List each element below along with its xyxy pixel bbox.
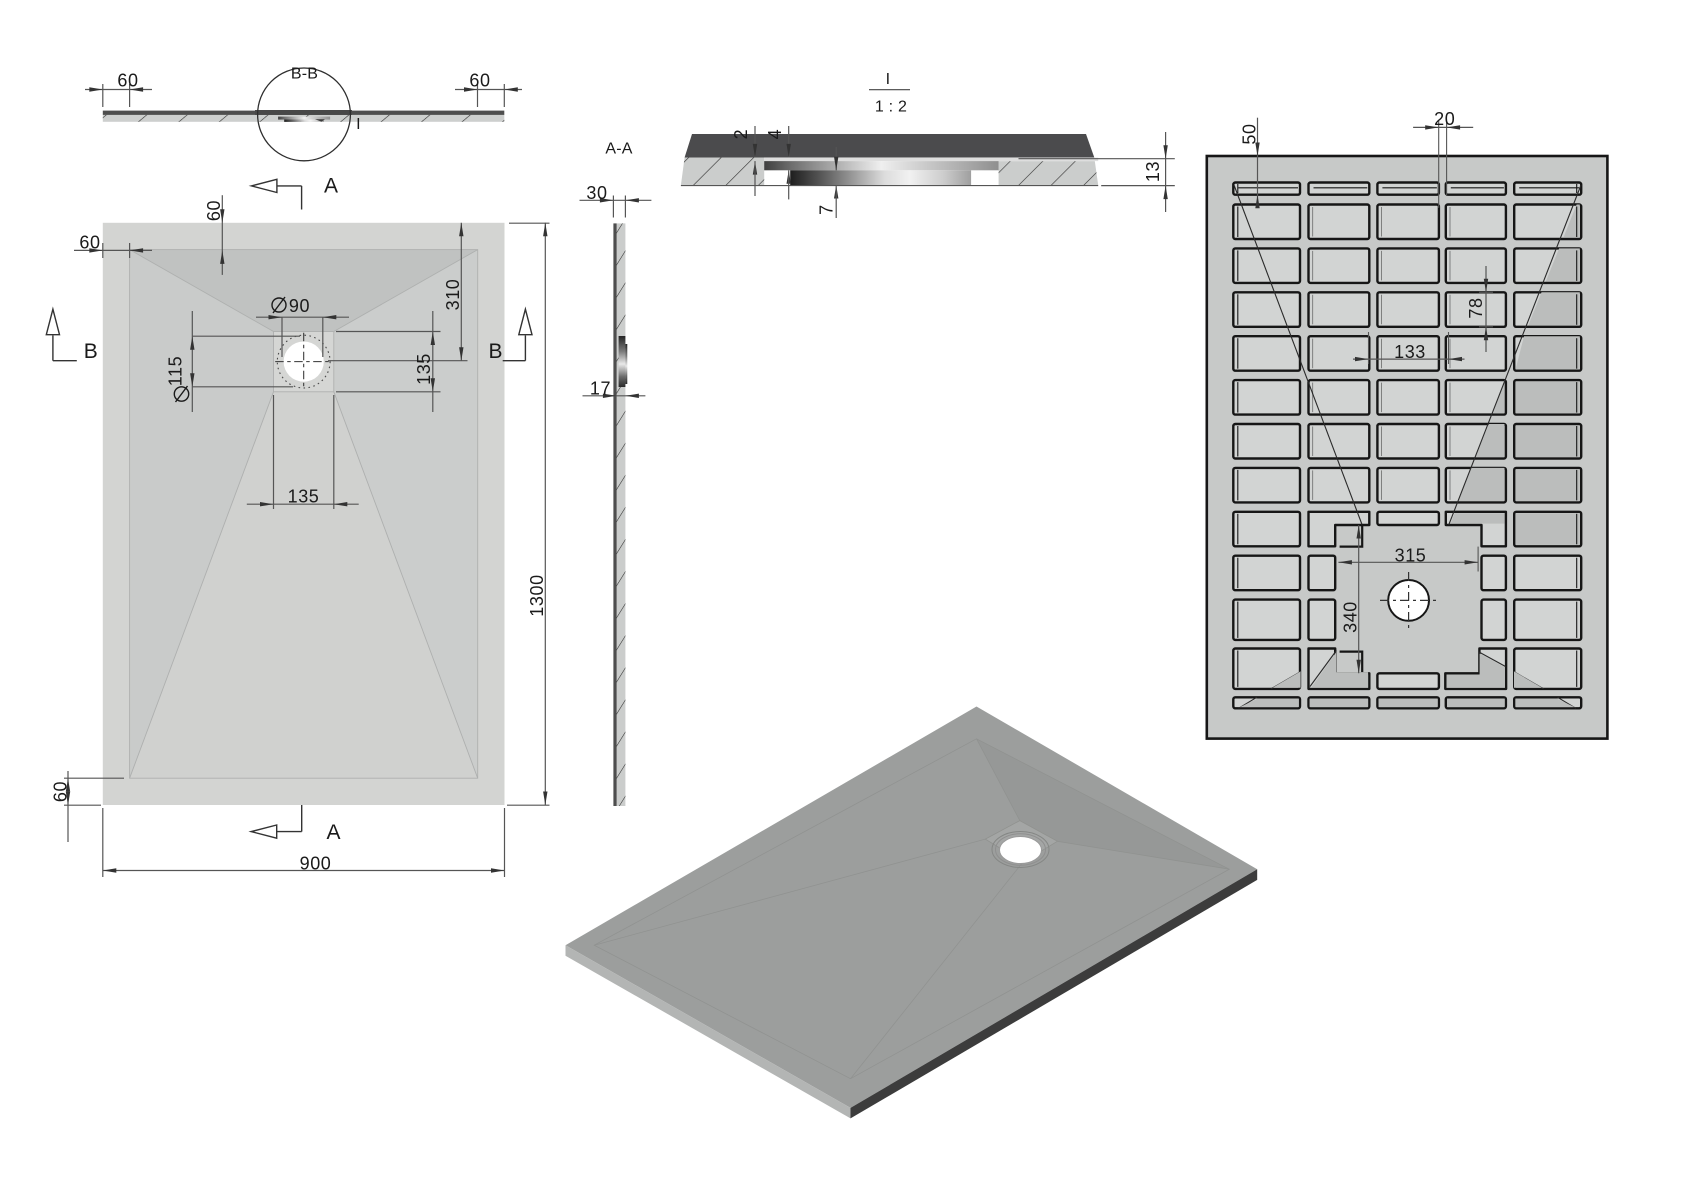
- svg-text:60: 60: [117, 71, 138, 91]
- svg-text:B: B: [489, 340, 503, 363]
- svg-text:A: A: [326, 821, 340, 844]
- svg-text:315: 315: [1395, 545, 1427, 565]
- svg-text:13: 13: [1143, 161, 1163, 182]
- svg-text:B: B: [84, 340, 98, 363]
- svg-text:1 : 2: 1 : 2: [875, 99, 907, 116]
- svg-text:A-A: A-A: [605, 140, 632, 157]
- svg-text:50: 50: [1240, 123, 1260, 144]
- svg-text:60: 60: [51, 781, 71, 802]
- svg-text:60: 60: [469, 71, 490, 91]
- svg-text:I: I: [886, 71, 891, 88]
- svg-text:90: 90: [289, 296, 310, 316]
- svg-text:78: 78: [1466, 297, 1486, 318]
- svg-text:60: 60: [79, 232, 100, 252]
- svg-text:133: 133: [1394, 342, 1426, 362]
- svg-text:60: 60: [204, 200, 224, 221]
- svg-text:30: 30: [586, 183, 607, 203]
- svg-text:900: 900: [300, 854, 332, 874]
- svg-text:20: 20: [1434, 109, 1455, 129]
- svg-text:135: 135: [288, 486, 320, 506]
- svg-text:310: 310: [443, 279, 463, 311]
- svg-text:B-B: B-B: [291, 65, 318, 82]
- svg-text:135: 135: [414, 353, 434, 385]
- svg-text:A: A: [324, 174, 338, 197]
- svg-text:I: I: [356, 116, 361, 133]
- svg-text:4: 4: [765, 129, 785, 140]
- svg-text:115: 115: [166, 356, 186, 387]
- svg-text:17: 17: [590, 379, 611, 399]
- svg-text:7: 7: [817, 204, 837, 215]
- svg-text:1300: 1300: [527, 574, 547, 616]
- svg-text:2: 2: [731, 129, 751, 140]
- svg-text:340: 340: [1341, 601, 1361, 633]
